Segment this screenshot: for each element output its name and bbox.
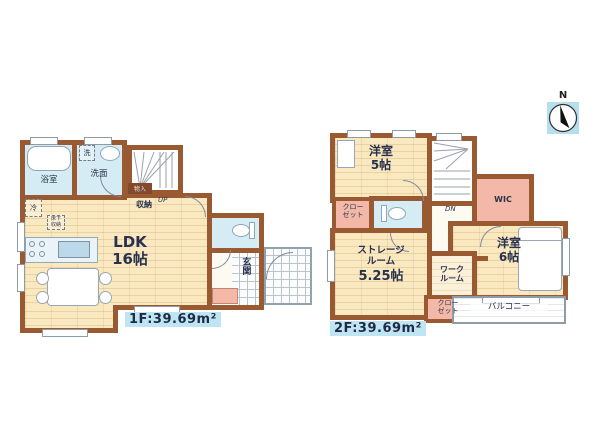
compass-face [547, 102, 579, 134]
compass-needle-icon [547, 102, 579, 134]
window [17, 264, 25, 292]
chair [99, 272, 112, 285]
bedroom6-label-line2: 6帖 [487, 251, 531, 265]
stairs-2f-treads [432, 141, 472, 201]
floor-storage: 床下 収納 [47, 215, 65, 230]
wic-label: WIC [487, 195, 519, 204]
window [84, 137, 112, 145]
storage-room-label: ストレージ ルーム 5.25帖 [338, 246, 424, 285]
toilet-tank-2f [381, 205, 387, 222]
chair [99, 291, 112, 304]
storage-room-label-line3: 5.25帖 [338, 270, 424, 285]
compass: N [545, 90, 581, 140]
storage-arrow: ∨ [138, 186, 143, 194]
work-room-label-line2: ルーム [430, 274, 474, 283]
kitchen-sink [58, 241, 90, 258]
stove-burner [29, 241, 35, 247]
ldk-label: LDK 16帖 [98, 234, 162, 269]
storage-room-label-line2: ルーム [338, 257, 424, 268]
chair [36, 291, 49, 304]
stove-burner [39, 241, 45, 247]
washing-machine: 洗 [79, 145, 95, 161]
window [436, 133, 462, 141]
stove-burner [39, 251, 45, 257]
bedroom6-label: 洋室 6帖 [487, 237, 531, 265]
entrance-label: 玄関 [240, 257, 250, 275]
stairs-2f [427, 136, 477, 206]
bedroom5-label-line1: 洋室 [352, 145, 410, 159]
up-label: UP [158, 196, 167, 204]
bathtub [27, 146, 71, 171]
bedroom5-label: 洋室 5帖 [352, 145, 410, 173]
dining-table [47, 268, 99, 306]
window [327, 250, 335, 282]
floor-storage-label-2: 収納 [51, 223, 61, 229]
washer-label: 洗 [84, 148, 91, 158]
window [30, 137, 58, 145]
window [42, 329, 88, 337]
stove-burner [29, 251, 35, 257]
closet-b-label: クロー ゼット [428, 299, 468, 315]
chair [36, 272, 49, 285]
window [347, 130, 371, 138]
closet-b-label-line1: クロー [428, 299, 468, 307]
dn-label: DN [445, 205, 456, 213]
compass-north-label: N [545, 90, 581, 102]
bath-label: 浴室 [26, 176, 72, 186]
closet-a-label-line1: クロー [335, 203, 371, 211]
window [392, 130, 416, 138]
window [562, 238, 570, 276]
washroom-sink [100, 146, 120, 161]
washroom-label: 洗面 [76, 170, 122, 180]
storage-label: 収納 [126, 200, 162, 209]
ldk-label-line1: LDK [98, 234, 162, 251]
bedroom5-label-line2: 5帖 [352, 159, 410, 173]
work-room-label: ワーク ルーム [430, 265, 474, 283]
genkan-step [212, 288, 238, 304]
floor1-area-label: 1F:39.69m² [125, 312, 221, 327]
ldk-label-line2: 16帖 [98, 251, 162, 268]
closet-b-label-line2: ゼット [428, 307, 468, 315]
bedroom6-label-line1: 洋室 [487, 237, 531, 251]
fridge: 冷 [25, 199, 42, 217]
closet-a-label-line2: ゼット [335, 211, 371, 219]
floor2-area-label: 2F:39.69m² [330, 321, 426, 336]
toilet-tank-1f [249, 222, 255, 239]
closet-a-label: クロー ゼット [335, 203, 371, 219]
toilet-bowl-1f [232, 224, 250, 237]
fridge-label: 冷 [30, 203, 37, 213]
work-room-label-line1: ワーク [430, 265, 474, 274]
window [17, 222, 25, 252]
toilet-bowl-2f [388, 207, 406, 220]
floorplan-canvas: 浴室 洗 洗面 物入 ∨ 収納 UP 冷 床下 収納 [0, 0, 600, 424]
balcony-label: バルコニー [470, 303, 548, 313]
